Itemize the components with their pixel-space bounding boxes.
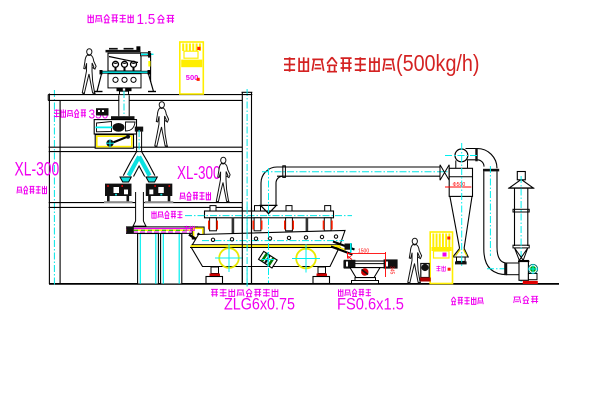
- svg-text:(500kg/h): (500kg/h): [396, 51, 480, 77]
- svg-text:XL-300: XL-300: [177, 163, 221, 184]
- svg-text:ZLG6x0.75: ZLG6x0.75: [224, 296, 295, 314]
- svg-text:1500: 1500: [358, 249, 369, 255]
- svg-text:Φ500: Φ500: [453, 182, 466, 188]
- svg-text:FS0.6x1.5: FS0.6x1.5: [337, 296, 404, 314]
- svg-text:500: 500: [186, 73, 199, 82]
- svg-text:345: 345: [389, 266, 395, 275]
- svg-text:XL-300: XL-300: [15, 158, 60, 180]
- svg-text:1.5: 1.5: [137, 12, 156, 29]
